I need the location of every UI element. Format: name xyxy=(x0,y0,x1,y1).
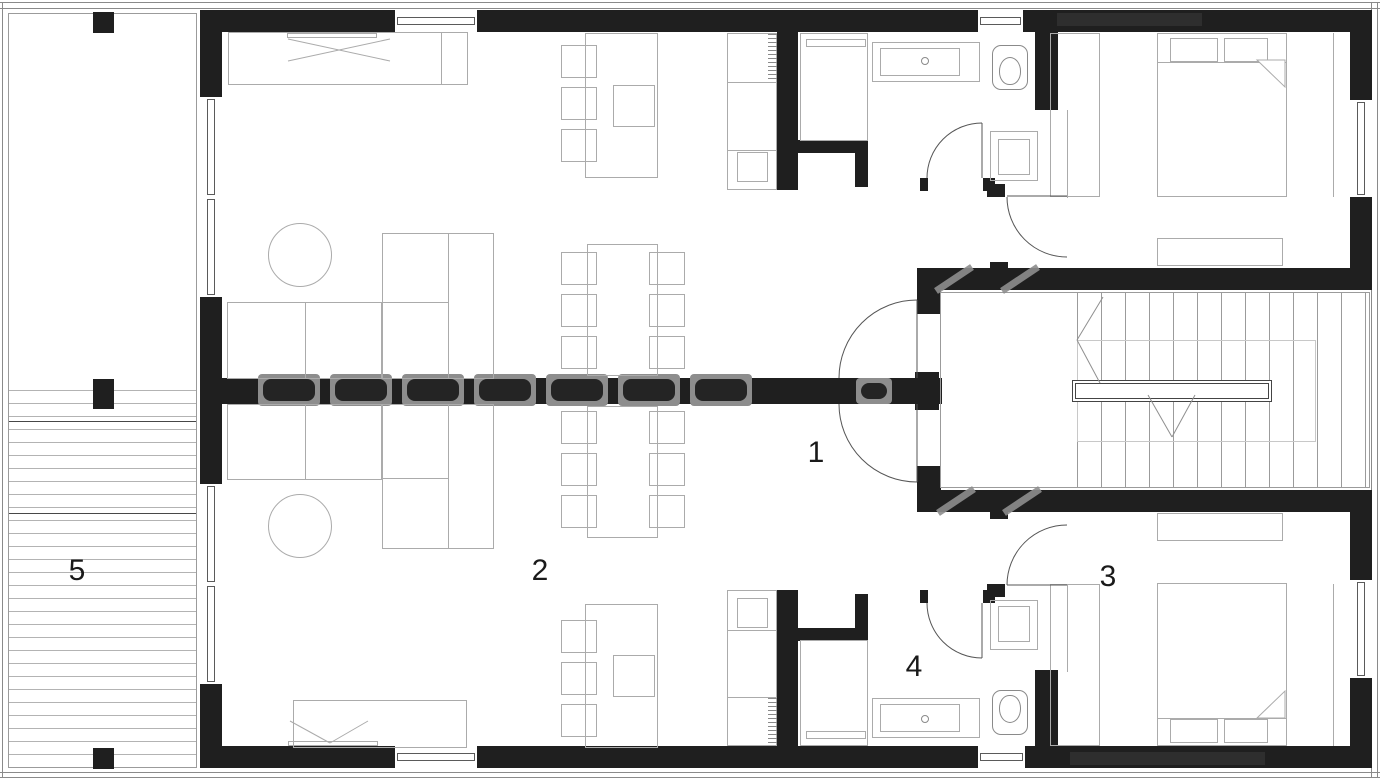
room-label-bathroom: 4 xyxy=(906,650,923,684)
watermark-streak xyxy=(938,489,974,513)
stair-direction-line xyxy=(1148,395,1172,437)
door-arc xyxy=(839,404,917,482)
blanket-fold xyxy=(1257,691,1285,718)
room-label-living: 2 xyxy=(532,554,549,588)
plan-line-overlay xyxy=(0,0,1380,781)
door-arc xyxy=(839,300,917,378)
tv-bracket-line xyxy=(330,721,368,743)
door-arc xyxy=(927,603,982,658)
blanket-fold xyxy=(1257,60,1285,87)
room-label-bedroom: 3 xyxy=(1100,560,1117,594)
door-arc xyxy=(927,123,982,178)
stair-direction-line xyxy=(1077,340,1100,383)
tv-bracket-line xyxy=(290,721,330,743)
stair-direction-line xyxy=(1077,297,1103,340)
room-label-terrace: 5 xyxy=(69,554,86,588)
watermark-streak xyxy=(1002,267,1038,291)
door-arc xyxy=(1007,525,1067,585)
floor-plan: 1 2 3 4 5 xyxy=(0,0,1380,781)
room-label-hall: 1 xyxy=(808,436,825,470)
watermark-streak xyxy=(1004,489,1040,513)
door-arc xyxy=(1007,197,1067,257)
watermark-streak xyxy=(936,267,972,291)
stair-direction-line xyxy=(1172,395,1195,437)
